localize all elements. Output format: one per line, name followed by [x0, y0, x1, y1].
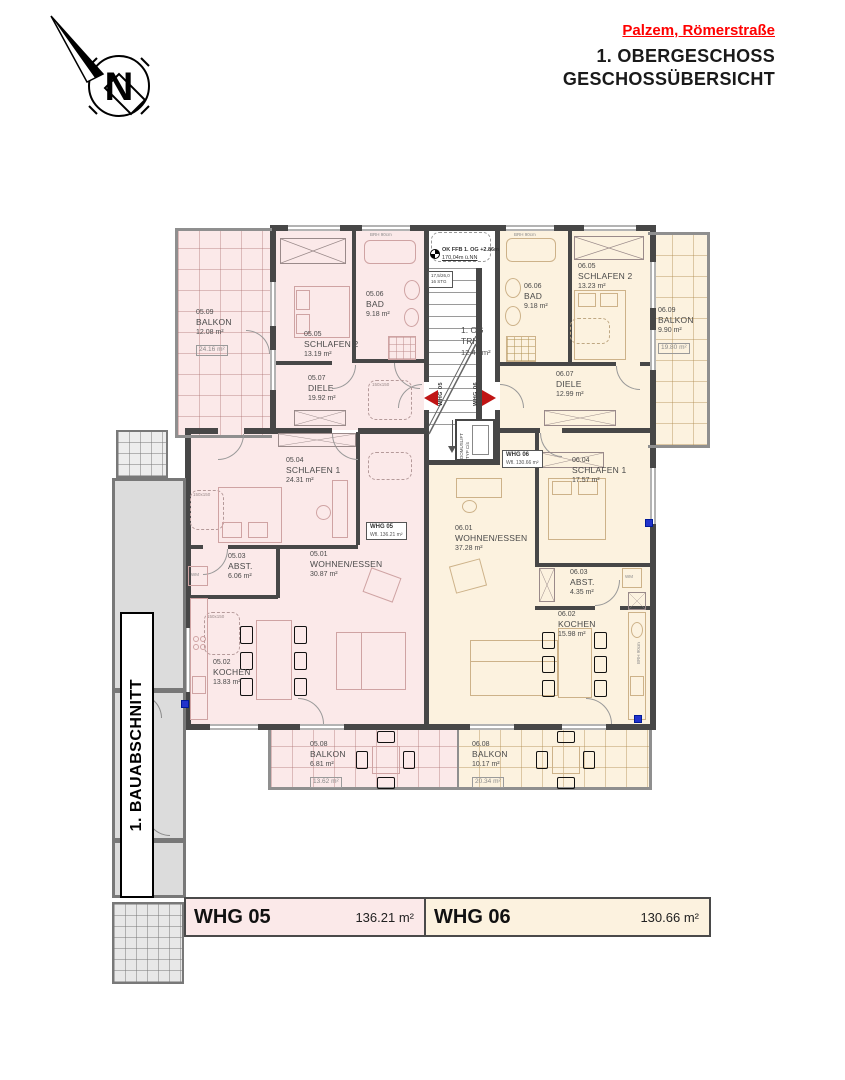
- drawing-subtitle: GESCHOSSÜBERSICHT: [563, 68, 775, 91]
- legend-whg05-area: 136.21 m²: [355, 910, 414, 925]
- wardrobe: [280, 238, 346, 264]
- bathtub: [506, 238, 556, 262]
- legend-whg06-name: WHG 06: [434, 906, 511, 929]
- window: [650, 262, 656, 308]
- stair-direction-line: [452, 420, 453, 446]
- chair: [542, 632, 555, 649]
- floor-title: 1. OBERGESCHOSS: [563, 45, 775, 68]
- entry-marker-whg05-icon: [424, 390, 438, 406]
- bed-pillow: [552, 481, 572, 495]
- legend: WHG 05 136.21 m² WHG 06 130.66 m²: [184, 897, 711, 937]
- tall-cabinet: [628, 592, 646, 610]
- wall-segment: [556, 362, 616, 366]
- elevator-cab: [472, 425, 489, 455]
- legend-cell-whg06: WHG 06 130.66 m²: [426, 899, 709, 935]
- chair: [594, 632, 607, 649]
- shower: [388, 336, 416, 360]
- balcony-chair: [536, 751, 548, 769]
- room-label-bad-06: 06.06 BAD 9.18 m²: [524, 282, 548, 311]
- balcony-wall: [648, 232, 710, 235]
- sill-height-label: BRH 90cm: [514, 232, 536, 237]
- room-label-diele-05: 05.07 DIELE 19.92 m²: [308, 374, 336, 403]
- floor-plan-page: { "header": { "location": "Palzem, Römer…: [0, 0, 845, 1080]
- wall-segment: [228, 545, 358, 549]
- room-label-abst-06: 06.03 ABST. 4.35 m²: [570, 568, 595, 597]
- balcony-chair: [583, 751, 595, 769]
- level-note-nn: 170,04m ü.NN: [442, 255, 477, 261]
- room-label-abst-05: 05.03 ABST. 6.06 m²: [228, 552, 253, 581]
- stair-spec-line2: 16 STG: [431, 279, 450, 285]
- window: [300, 724, 344, 730]
- desk-chair: [462, 500, 477, 513]
- dining-table: [256, 620, 292, 700]
- level-marker-icon: [430, 249, 440, 259]
- room-label-bad-05: 05.06 BAD 9.18 m²: [366, 290, 390, 319]
- wardrobe: [574, 236, 644, 260]
- hob-burner: [193, 644, 199, 650]
- construction-phase-box: 1. BAUABSCHNITT: [120, 612, 154, 898]
- symbol-marker: [645, 519, 653, 527]
- window: [506, 225, 554, 231]
- symbol-marker: [634, 715, 642, 723]
- hob-burner: [200, 636, 206, 642]
- chair: [294, 652, 307, 670]
- bed-pillow: [248, 522, 268, 538]
- room-label-diele-06: 06.07 DIELE 12.99 m²: [556, 370, 584, 399]
- balcony-wall: [175, 228, 178, 438]
- room-label-stairwell: 1. OG TRH. 12.41 m²: [461, 325, 491, 358]
- window: [210, 724, 258, 730]
- chair: [594, 656, 607, 673]
- adjacent-window-grid: [116, 430, 168, 478]
- chair: [294, 626, 307, 644]
- toilet: [505, 306, 521, 326]
- construction-phase-label: 1. BAUABSCHNITT: [128, 679, 146, 831]
- balcony-wall: [175, 228, 272, 231]
- wardrobe: [294, 410, 346, 426]
- kitchen-counter: [190, 598, 208, 720]
- north-arrow-icon: N: [45, 12, 170, 130]
- clearance-dim-label: 150x150: [207, 614, 224, 619]
- wardrobe: [278, 433, 356, 447]
- sill-height-label: BRH 90cm: [636, 634, 641, 664]
- room-label-kochen-06: 06.02 KOCHEN 15.98 m²: [558, 610, 596, 639]
- legend-whg06-area: 130.66 m²: [640, 910, 699, 925]
- wall-segment: [358, 428, 424, 434]
- balcony-table: [372, 746, 400, 774]
- shower: [506, 336, 536, 362]
- wall-segment: [270, 225, 276, 433]
- stair-spec-box: 17,5/26,0 16 STG: [428, 271, 453, 288]
- wall-segment: [562, 428, 650, 433]
- toilet: [404, 308, 419, 327]
- sink: [505, 278, 521, 298]
- window: [362, 225, 410, 231]
- balcony-chair: [557, 777, 575, 789]
- window: [584, 225, 636, 231]
- chair: [594, 680, 607, 697]
- wardrobe: [544, 410, 616, 426]
- washing-machine-label: WM: [625, 574, 633, 579]
- wall-segment: [500, 362, 556, 366]
- bed-pillow: [578, 293, 596, 307]
- balcony-chair: [403, 751, 415, 769]
- adjacent-balcony-hatch: [112, 902, 184, 984]
- clearance-dim-label: 150x150: [372, 382, 389, 387]
- balcony-chair: [377, 777, 395, 789]
- elevator-label-line1: DOMUSLIFT: [459, 421, 464, 459]
- balcony-chair: [356, 751, 368, 769]
- oven: [630, 676, 644, 696]
- desk: [456, 478, 502, 498]
- balcony-chair: [377, 731, 395, 743]
- window: [288, 225, 340, 231]
- sofa-seat: [336, 632, 362, 690]
- kitchen-sink: [192, 676, 206, 694]
- room-label-schlafen1-06: 06.04 SCHLAFEN 1 17.57 m²: [572, 456, 626, 485]
- wall-segment: [424, 465, 429, 726]
- window: [650, 330, 656, 370]
- room-label-schlafen2-06: 06.05 SCHLAFEN 2 13.23 m²: [578, 262, 632, 291]
- balcony-chair: [557, 731, 575, 743]
- window: [270, 350, 276, 390]
- window: [650, 468, 656, 524]
- window: [470, 724, 514, 730]
- bathtub: [364, 240, 416, 264]
- balcony-wall: [457, 730, 459, 787]
- wall-segment: [190, 545, 203, 549]
- apartment-area-box-whg06: WHG 06 Wfl. 130.66 m²: [502, 450, 543, 468]
- desk: [332, 480, 348, 538]
- wall-segment: [535, 563, 650, 567]
- bed-pillow: [296, 290, 310, 310]
- desk-chair: [316, 505, 331, 520]
- legend-cell-whg05: WHG 05 136.21 m²: [186, 899, 426, 935]
- clearance-square: [368, 452, 412, 480]
- clearance-dim-label: 150x150: [193, 492, 210, 497]
- sill-height-label: BRH 90cm: [370, 232, 392, 237]
- chair: [240, 626, 253, 644]
- wall-segment: [276, 548, 280, 598]
- room-label-balkon-ost: 06.09 BALKON 9.90 m² 19.80 m²: [658, 306, 694, 356]
- entry-marker-whg05-label: WHG 05: [438, 364, 444, 406]
- room-label-balkon-sued-05: 05.08 BALKON 6.81 m² 13.62 m²: [310, 740, 346, 790]
- wall-segment: [640, 362, 650, 366]
- balcony-wall: [649, 730, 652, 789]
- room-label-balkon-sued-06: 06.08 BALKON 10.17 m² 20.34 m²: [472, 740, 508, 790]
- shelf: [539, 568, 555, 602]
- room-label-kochen-05: 05.02 KOCHEN 13.83 m²: [213, 658, 251, 687]
- hob-burner: [193, 636, 199, 642]
- wall-segment: [568, 230, 572, 363]
- title-block: Palzem, Römerstraße 1. OBERGESCHOSS GESC…: [563, 22, 775, 90]
- entry-marker-whg06-icon: [482, 390, 496, 406]
- level-note-ffb: OK FFB 1. OG +2.86m: [442, 247, 499, 253]
- apartment-area-box-whg05: WHG 05 Wfl. 136.21 m²: [366, 522, 407, 540]
- chair: [542, 680, 555, 697]
- window: [562, 724, 606, 730]
- room-label-balkon-west: 05.09 BALKON 12.08 m² 24.16 m²: [196, 308, 232, 358]
- hob-burner: [200, 644, 206, 650]
- chair: [542, 656, 555, 673]
- bed-pillow: [222, 522, 242, 538]
- balcony-wall: [268, 730, 271, 789]
- room-label-schlafen2-05: 05.05 SCHLAFEN 2 13.19 m²: [304, 330, 358, 359]
- chair: [294, 678, 307, 696]
- washing-machine-label: WM: [191, 572, 199, 577]
- balcony-table: [552, 746, 580, 774]
- symbol-marker: [181, 700, 189, 708]
- wall-segment: [495, 410, 500, 465]
- elevator-label-line2: TYP C/4: [465, 421, 470, 459]
- wall-segment: [276, 361, 332, 365]
- balcony-wall: [707, 232, 710, 448]
- project-location: Palzem, Römerstraße: [563, 22, 775, 39]
- wall-segment: [500, 428, 540, 433]
- room-label-wohnen-06: 06.01 WOHNEN/ESSEN 37.28 m²: [455, 524, 527, 553]
- entry-marker-whg06-label: WHG 06: [473, 364, 479, 406]
- room-label-wohnen-05: 05.01 WOHNEN/ESSEN 30.87 m²: [310, 550, 382, 579]
- sink: [404, 280, 420, 300]
- room-label-schlafen1-05: 05.04 SCHLAFEN 1 24.31 m²: [286, 456, 340, 485]
- legend-whg05-name: WHG 05: [194, 906, 271, 929]
- window: [270, 282, 276, 326]
- bed-pillow: [600, 293, 618, 307]
- balcony-wall: [648, 445, 710, 448]
- svg-text:N: N: [105, 65, 134, 109]
